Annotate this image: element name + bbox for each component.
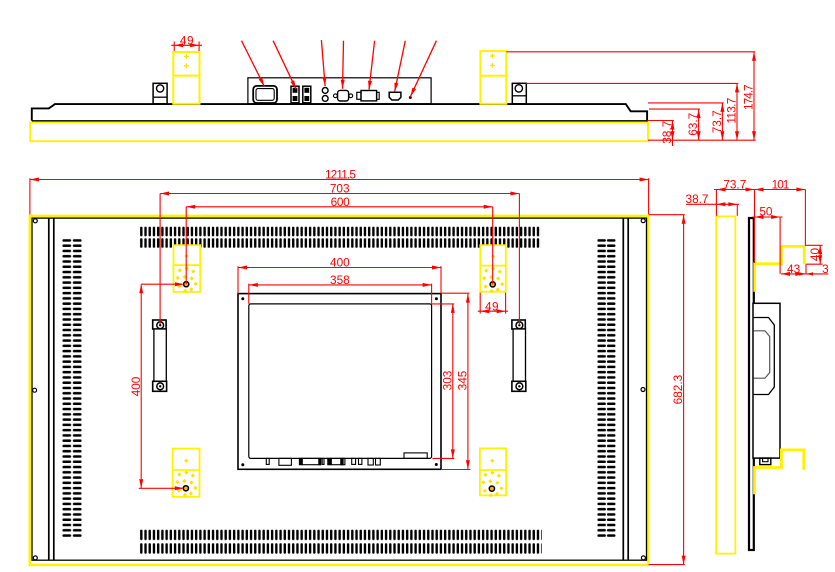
svg-text:49: 49 (485, 299, 499, 313)
svg-text:358: 358 (330, 273, 350, 287)
svg-text:682.3: 682.3 (671, 374, 685, 404)
svg-text:303: 303 (440, 370, 454, 390)
svg-text:43: 43 (787, 262, 801, 276)
svg-text:600: 600 (331, 195, 351, 209)
svg-text:101: 101 (772, 177, 789, 191)
svg-text:174.7: 174.7 (742, 85, 756, 110)
svg-text:49: 49 (180, 33, 194, 47)
svg-text:38.7: 38.7 (686, 192, 709, 206)
svg-text:703: 703 (330, 182, 350, 196)
svg-text:3: 3 (822, 262, 829, 276)
svg-text:1211.5: 1211.5 (325, 167, 356, 181)
svg-text:40: 40 (808, 248, 822, 262)
svg-text:400: 400 (330, 256, 350, 270)
svg-text:73.7: 73.7 (723, 177, 746, 191)
svg-text:113.7: 113.7 (725, 98, 739, 123)
svg-text:345: 345 (456, 370, 470, 390)
svg-text:50: 50 (759, 205, 773, 219)
svg-text:63.7: 63.7 (686, 113, 700, 136)
svg-text:38.7: 38.7 (660, 121, 674, 144)
svg-text:73.7: 73.7 (710, 110, 724, 133)
svg-text:400: 400 (129, 376, 143, 396)
